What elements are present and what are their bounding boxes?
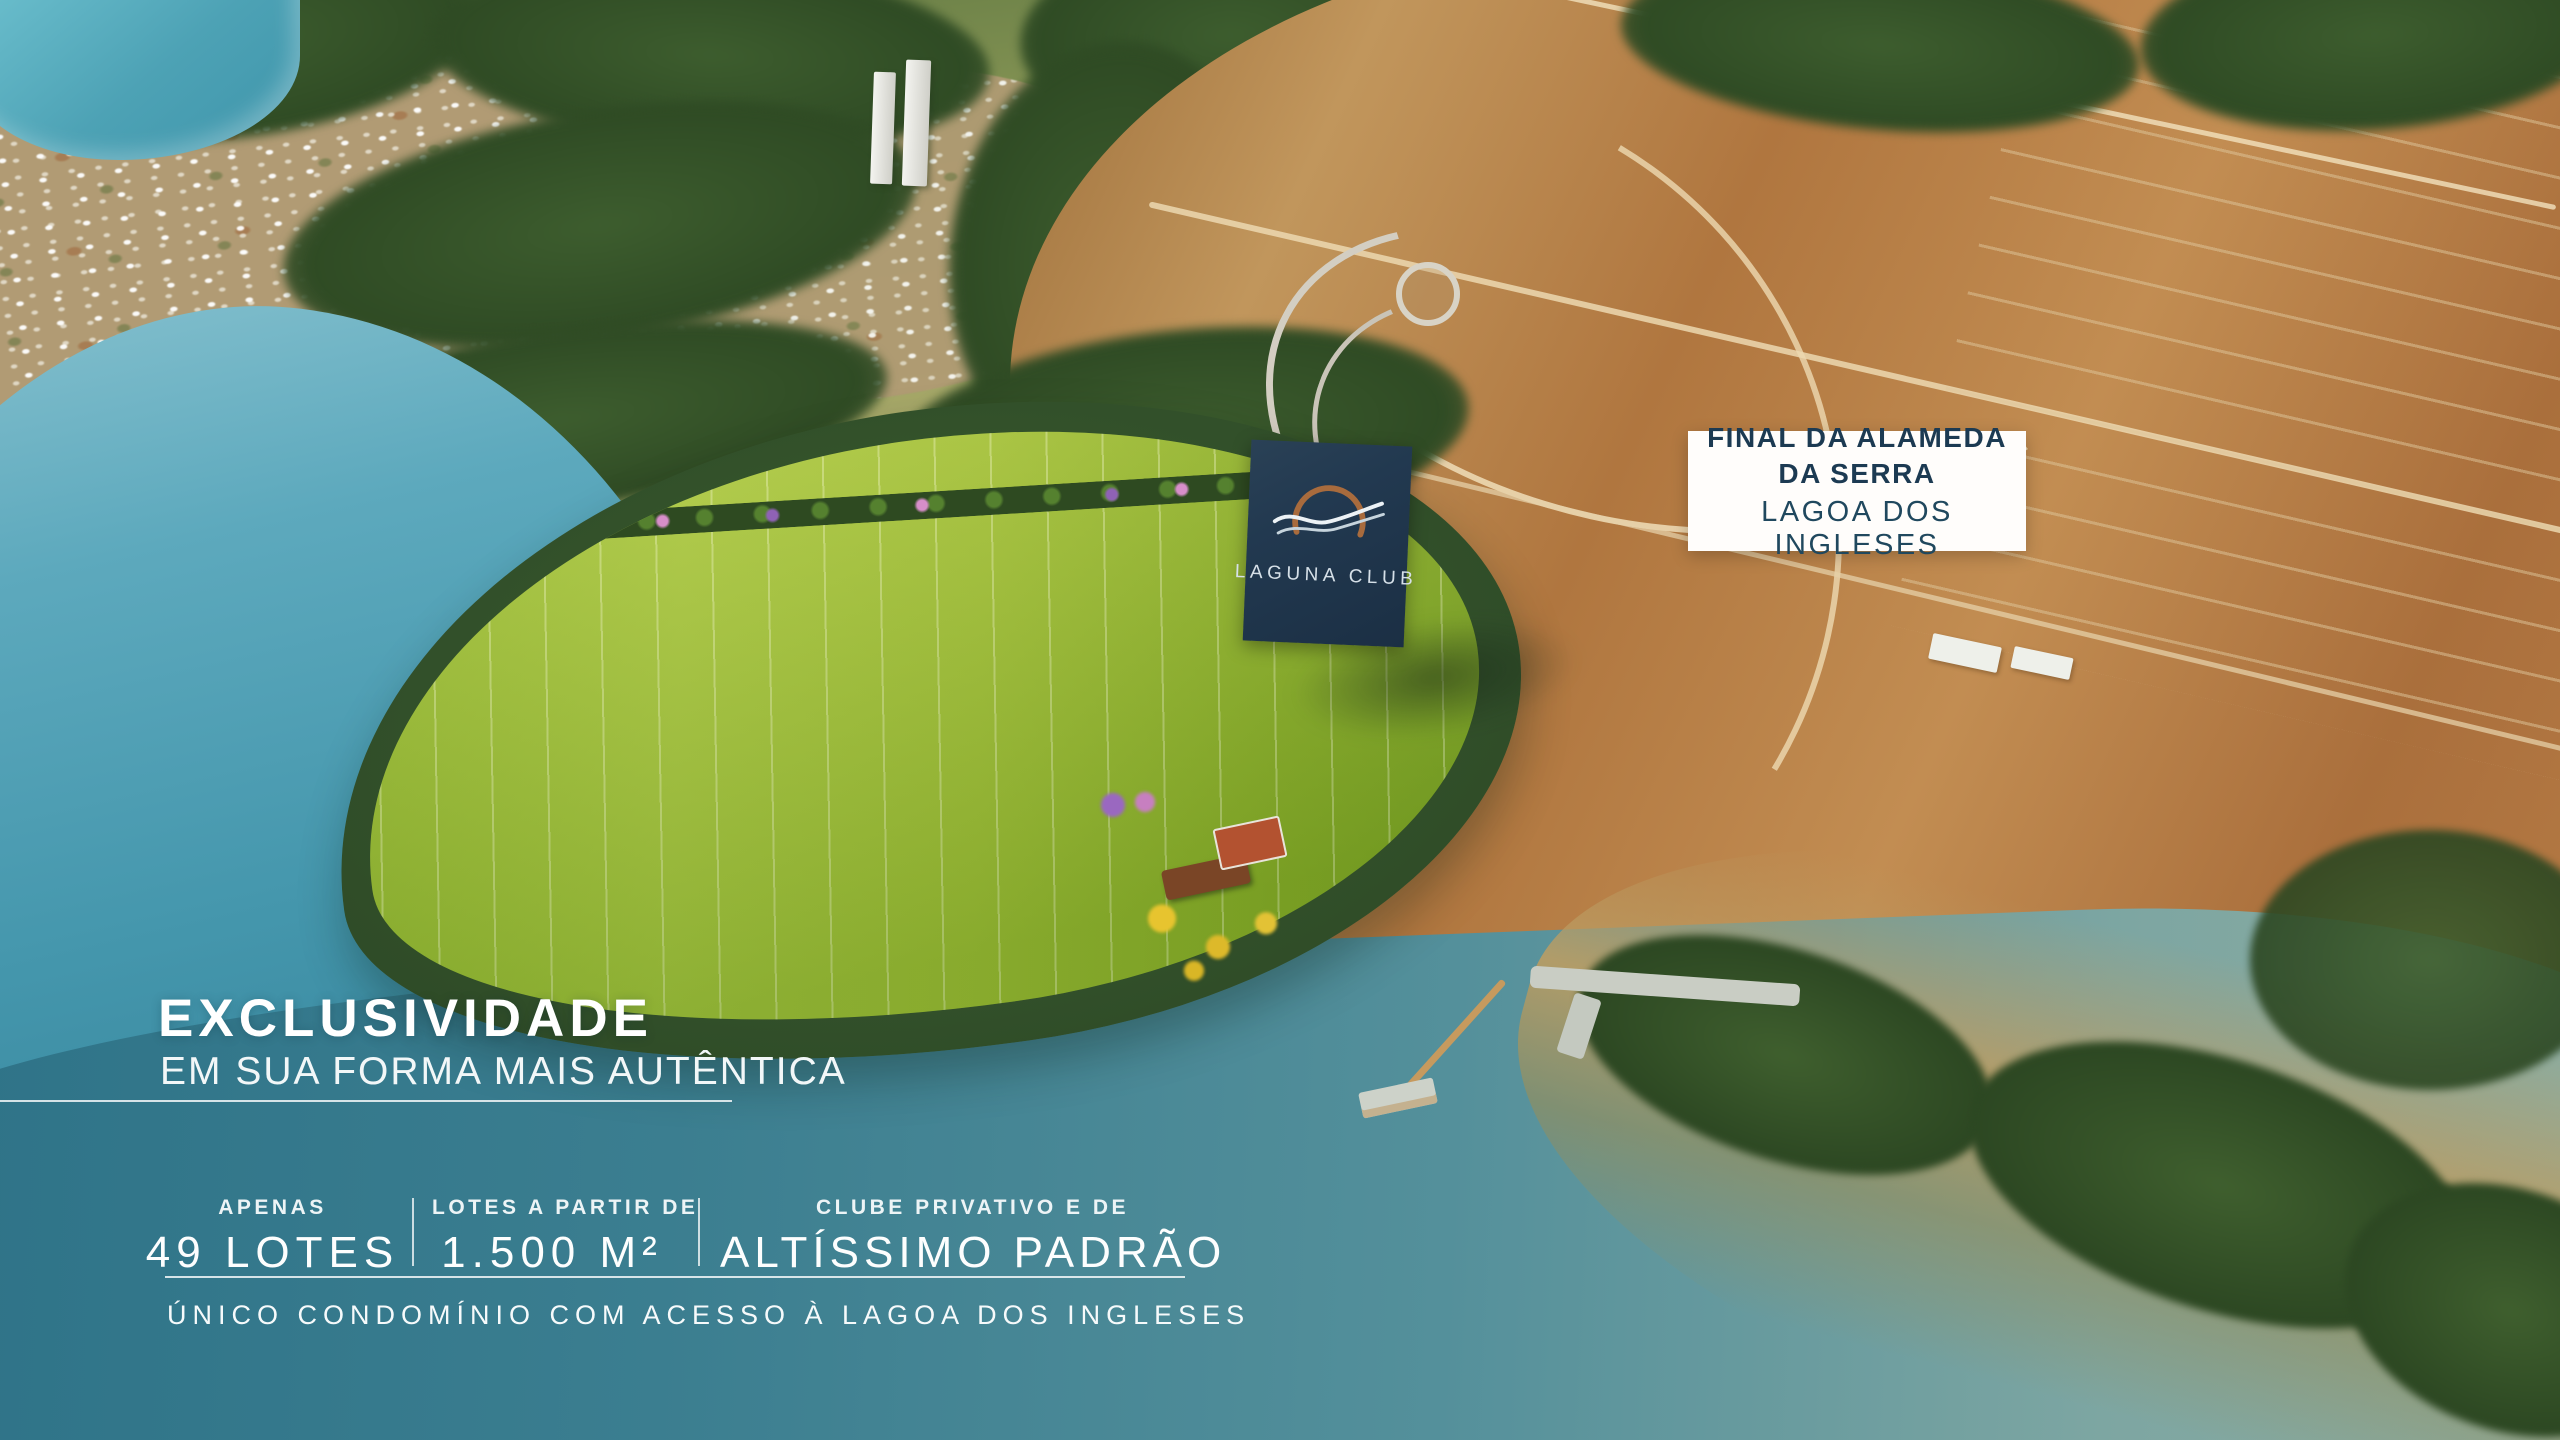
wave-icon — [1274, 499, 1381, 526]
stat-divider — [698, 1198, 700, 1266]
stat-private-club: CLUBE PRIVATIVO E DE ALTÍSSIMO PADRÃO — [720, 1196, 1225, 1278]
stat-label: LOTES A PARTIR DE — [432, 1196, 672, 1220]
stat-label: APENAS — [140, 1196, 405, 1220]
tower-building — [870, 72, 896, 185]
headline-subtitle: EM SUA FORMA MAIS AUTÊNTICA — [160, 1050, 847, 1094]
flowering-trees-yellow — [1130, 890, 1290, 985]
stat-divider — [412, 1198, 414, 1266]
location-line-2: DA SERRA — [1778, 456, 1935, 492]
brand-name: LAGUNA CLUB — [1234, 561, 1417, 591]
roundabout — [1396, 262, 1460, 326]
flowering-trees-purple — [1085, 775, 1165, 835]
stat-lot-count: APENAS 49 LOTES — [140, 1196, 405, 1278]
headline-title: EXCLUSIVIDADE — [158, 988, 653, 1049]
divider-line-top — [0, 1100, 732, 1102]
aerial-photo-scene: LAGUNA CLUB FINAL DA ALAMEDA DA SERRA LA… — [0, 0, 2560, 1440]
laguna-club-sign: LAGUNA CLUB — [1243, 440, 1413, 648]
stat-lot-size: LOTES A PARTIR DE 1.500 M² — [432, 1196, 672, 1278]
divider-line-bottom — [165, 1276, 1185, 1278]
laguna-club-logo — [1269, 467, 1388, 554]
tower-building — [902, 60, 931, 187]
stat-value: 1.500 M² — [432, 1228, 672, 1278]
stat-label: CLUBE PRIVATIVO E DE — [720, 1196, 1225, 1220]
stat-value: ALTÍSSIMO PADRÃO — [720, 1228, 1225, 1278]
location-line-3: LAGOA DOS INGLESES — [1688, 496, 2026, 562]
stat-value: 49 LOTES — [140, 1228, 405, 1278]
location-line-1: FINAL DA ALAMEDA — [1707, 420, 2007, 456]
tagline: ÚNICO CONDOMÍNIO COM ACESSO À LAGOA DOS … — [167, 1300, 1250, 1331]
location-label: FINAL DA ALAMEDA DA SERRA LAGOA DOS INGL… — [1688, 431, 2026, 551]
